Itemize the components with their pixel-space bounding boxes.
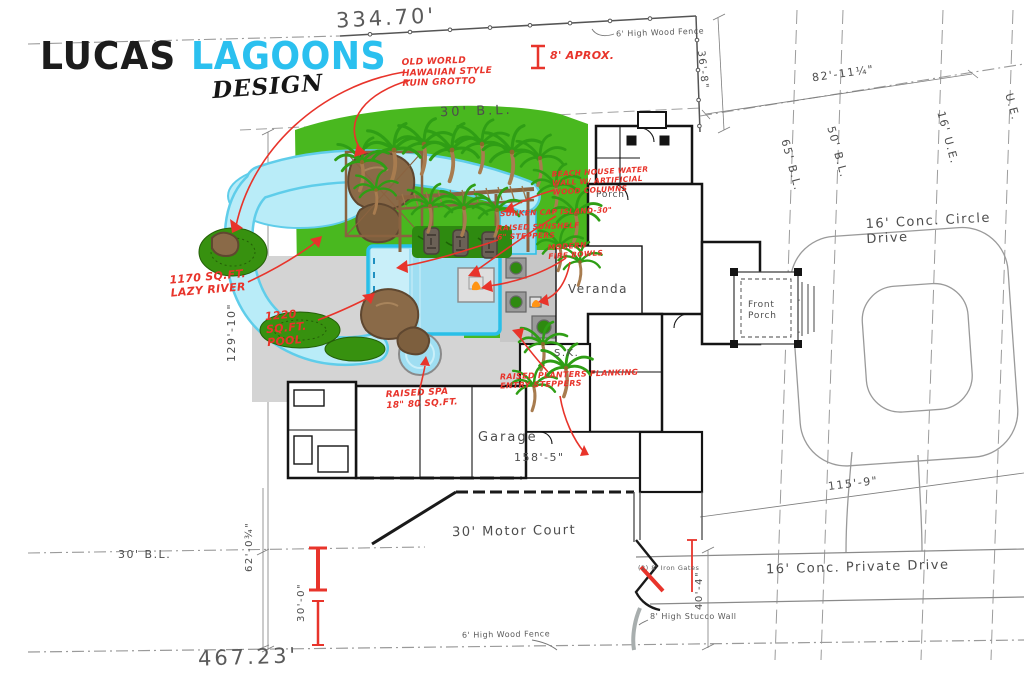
label-stucco-wall: 8' High Stucco Wall — [650, 612, 737, 621]
label-front-porch: Front Porch — [748, 300, 792, 321]
label-wood-fence-bottom: 6' High Wood Fence — [462, 629, 550, 640]
dim-house-front: 158'-5" — [514, 452, 565, 465]
note-pool: 1220 SQ.FT. POOL — [264, 305, 339, 350]
note-sunshelf: RAISED SUNSHELF 6" STEPPERS — [497, 221, 590, 242]
dim-drive-width: 40'-4" — [694, 571, 706, 610]
setback-top-bl: 30' B.L. — [440, 103, 513, 121]
logo: LUCAS LAGOONS DESIGN — [40, 22, 360, 99]
note-grotto: OLD WORLD HAWAIIAN STYLE RUIN GROTTO — [401, 54, 514, 90]
dim-left-boundary: 129'-10" — [226, 303, 239, 362]
label-sk: S.K. — [554, 348, 579, 360]
note-spa: RAISED SPA 18" 80 SQ.FT. — [385, 386, 466, 411]
label-veranda: Veranda — [568, 282, 628, 296]
note-approx: 8' APROX. — [550, 50, 614, 63]
label-garage: Garage — [478, 430, 538, 445]
dim-bottom-boundary: 467.23' — [198, 643, 299, 671]
site-plan-page: LUCAS LAGOONS DESIGN 334.70' 467.23' 129… — [0, 0, 1024, 682]
label-motor-court: 30' Motor Court — [452, 523, 576, 540]
dim-gate-span: 30'-0" — [296, 583, 308, 622]
dim-court-side: 62'-0¾" — [244, 522, 256, 572]
logo-lucas: LUCAS — [40, 34, 176, 78]
label-iron-gates: (2) 8' Iron Gates — [638, 565, 699, 573]
dim-top-boundary: 334.70' — [335, 3, 436, 33]
note-beach-house: BEACH HOUSE WATER WALL W/ ARTIFICIAL WOO… — [551, 165, 654, 197]
setback-left-bl: 30' B.L. — [118, 549, 171, 562]
